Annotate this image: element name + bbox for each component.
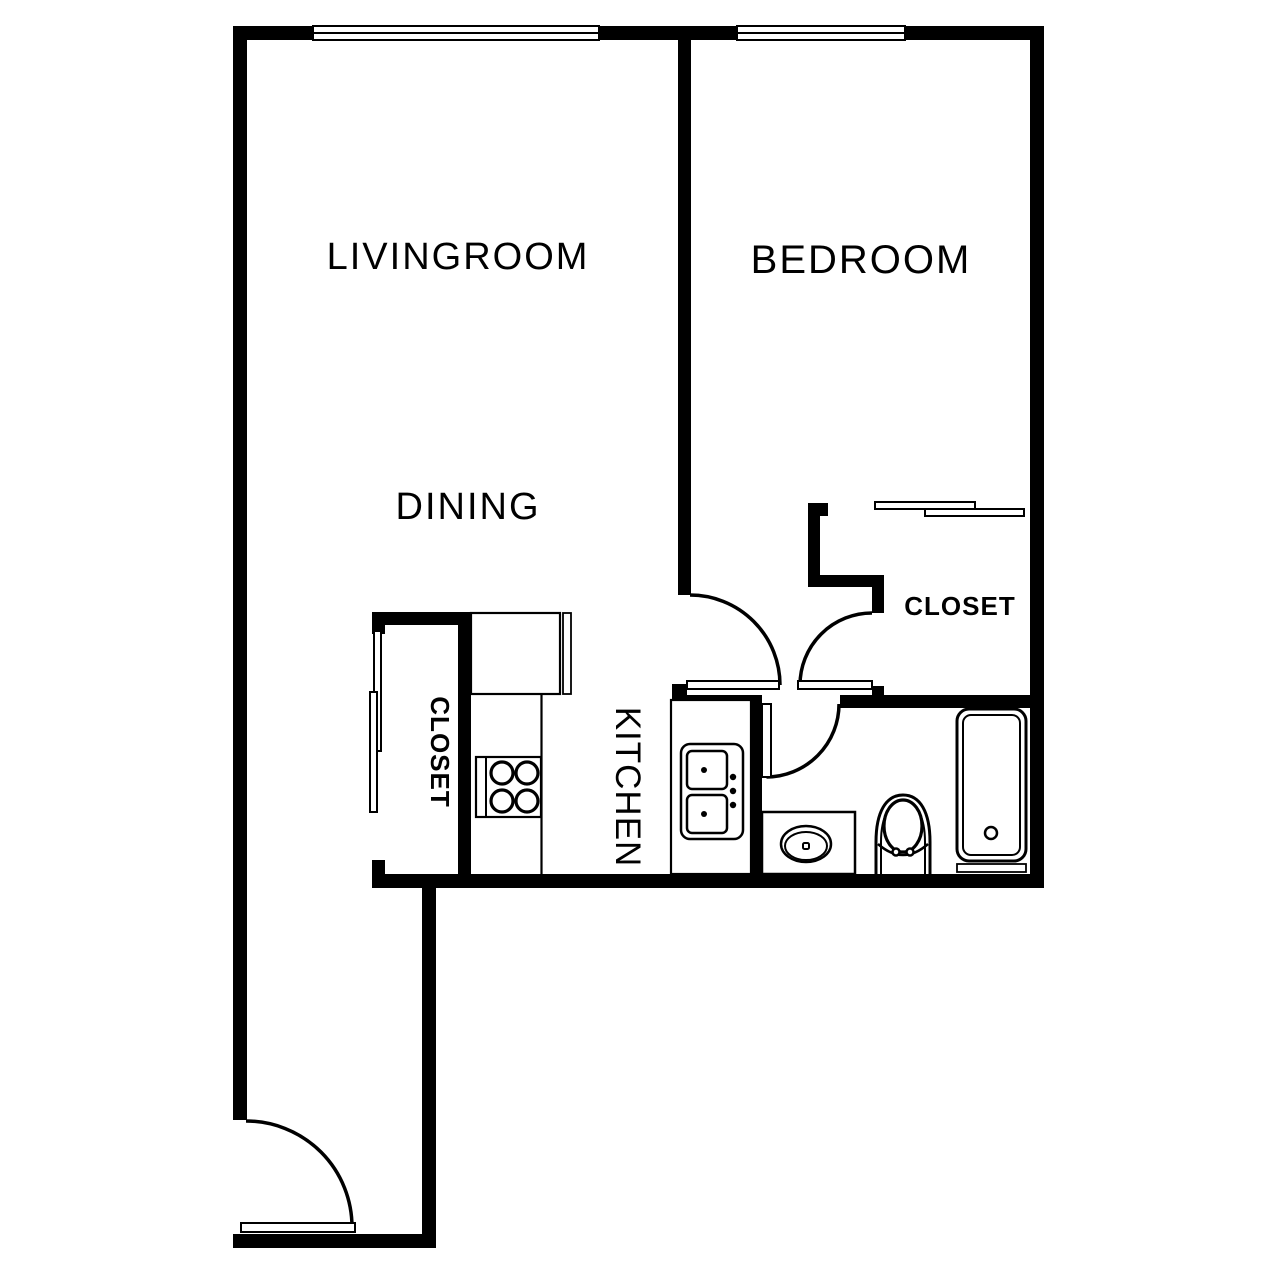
bathroom-fixtures — [762, 709, 1026, 874]
label-hall-closet: CLOSET — [425, 696, 455, 807]
wall-living-bedroom-divider — [678, 40, 691, 595]
wall-left-exterior — [233, 26, 247, 1120]
kitchen-sink-icon — [681, 744, 743, 839]
floor-plan-drawing: LIVINGROOM BEDROOM DINING CLOSET CLOSET … — [0, 0, 1282, 1280]
label-dining: DINING — [396, 486, 541, 528]
wall-hall-right-jamb — [872, 686, 884, 697]
wall-top-right — [905, 26, 1044, 40]
wall-bedroom-closet-horiz — [808, 575, 884, 587]
wall-hall-left-jamb — [672, 684, 687, 697]
bedroom-window — [737, 26, 905, 40]
bedroom-door — [687, 595, 780, 689]
floor-plan: LIVINGROOM BEDROOM DINING CLOSET CLOSET … — [0, 0, 1282, 1280]
wall-hall-right — [840, 695, 1030, 708]
toilet-icon — [876, 795, 930, 874]
kitchen-counter — [471, 613, 560, 694]
bathtub-icon — [957, 709, 1026, 872]
refrigerator — [563, 613, 571, 694]
wall-hall-closet-right — [458, 612, 471, 874]
label-livingroom: LIVINGROOM — [327, 236, 590, 278]
wall-hall-closet-top — [372, 612, 471, 625]
wall-top-middle — [599, 26, 737, 40]
entry-door — [241, 1121, 355, 1232]
label-bedroom: BEDROOM — [751, 238, 972, 282]
wall-hall-closet-stub-bottom — [372, 860, 385, 876]
bathroom-door — [762, 704, 839, 777]
wall-bedroom-closet-vert2 — [872, 587, 884, 613]
wall-right-exterior — [1030, 26, 1044, 888]
wall-corridor-right — [422, 888, 436, 1248]
bedroom-closet-door — [798, 613, 872, 689]
bathtub-apron — [957, 864, 1026, 872]
wall-corridor-bottom — [233, 1234, 436, 1248]
vanity-sink-icon — [762, 812, 855, 874]
label-bedroom-closet: CLOSET — [904, 591, 1015, 621]
sliding-closet-doors-hall — [370, 631, 381, 812]
wall-bottom-main — [372, 874, 1044, 888]
sliding-closet-doors-bedroom — [875, 502, 1024, 516]
wall-bedroom-closet-vert1 — [808, 503, 820, 587]
stove-icon — [476, 757, 541, 817]
walls — [233, 26, 1044, 1248]
label-kitchen: KITCHEN — [608, 707, 647, 868]
livingroom-window — [313, 26, 599, 40]
